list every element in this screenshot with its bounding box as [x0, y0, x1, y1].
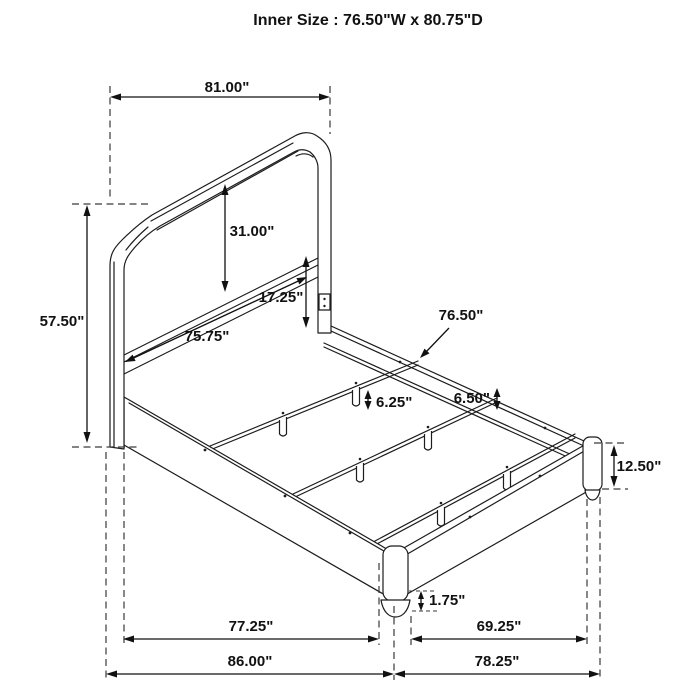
right-corner-post [583, 437, 602, 500]
dim-rail-mount-height: 17.25" [259, 256, 310, 328]
bed-dimension-diagram-page: 81.00" 57.50" 31.00" 17.25" 75.75" 76.50… [0, 0, 700, 700]
dim-foot-height-label: 1.75" [429, 592, 465, 609]
headboard-bottom-rail [124, 258, 318, 374]
dim-slat-leg-height-label: 6.25" [376, 394, 412, 411]
dim-footboard-span-inner: 69.25" [411, 618, 587, 643]
dim-footboard-span-inner-label: 69.25" [477, 618, 522, 635]
dim-rail-span-inner: 77.25" [123, 618, 379, 643]
dim-slat-leg-height: 6.25" [365, 390, 413, 411]
extension-lines [72, 86, 628, 680]
dim-side-rail-height: 12.50" [611, 445, 662, 487]
near-side-rail [124, 397, 392, 599]
dim-panel-height: 31.00" [222, 184, 275, 292]
dim-rail-mount-height-label: 17.25" [259, 289, 304, 306]
dim-overall-width: 78.25" [394, 653, 600, 678]
dim-panel-height-label: 31.00" [230, 223, 275, 240]
foot-corner-post [381, 546, 410, 617]
slat-2 [293, 398, 497, 498]
footboard-rail [402, 443, 588, 597]
dim-headboard-width: 81.00" [110, 79, 330, 101]
dim-overall-depth-label: 86.00" [228, 653, 273, 670]
dim-rail-ledge-depth-label: 6.50" [454, 390, 490, 407]
dim-slat-length-label: 76.50" [439, 307, 484, 324]
dim-headboard-width-label: 81.00" [205, 79, 250, 96]
bed-dimension-diagram: 81.00" 57.50" 31.00" 17.25" 75.75" 76.50… [0, 0, 700, 700]
dim-headboard-height: 57.50" [40, 205, 91, 443]
dim-slat-length: 76.50" [420, 307, 483, 358]
dim-side-rail-height-label: 12.50" [617, 458, 662, 475]
dim-rail-span-inner-label: 77.25" [229, 618, 274, 635]
dim-overall-width-label: 78.25" [475, 653, 520, 670]
page-title: Inner Size : 76.50"W x 80.75"D [253, 12, 483, 29]
dim-foot-height: 1.75" [418, 591, 465, 611]
dim-headboard-inner-width: 75.75" [125, 277, 307, 362]
dim-headboard-height-label: 57.50" [40, 313, 85, 330]
dim-overall-depth: 86.00" [106, 653, 394, 678]
